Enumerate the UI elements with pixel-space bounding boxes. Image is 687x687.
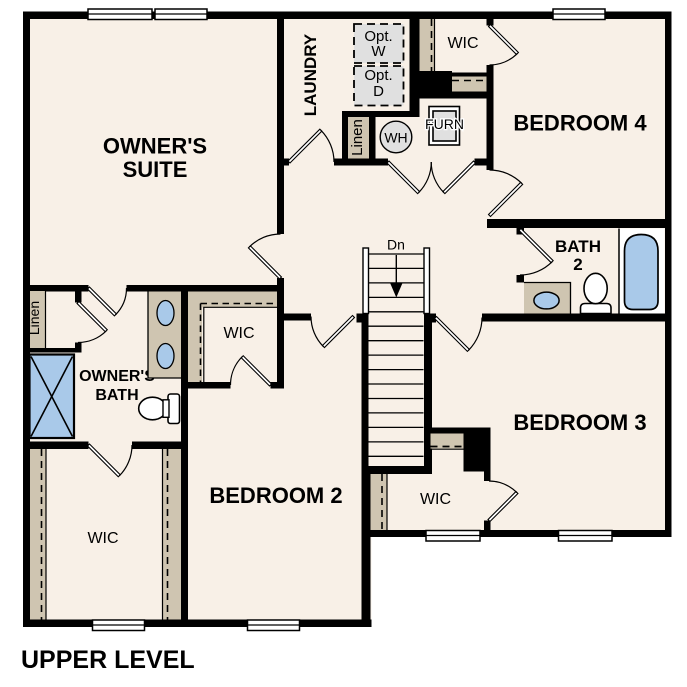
svg-text:WIC: WIC: [223, 325, 254, 342]
svg-text:W: W: [371, 43, 386, 60]
svg-text:Linen: Linen: [349, 119, 366, 156]
svg-text:BATH: BATH: [555, 237, 601, 256]
svg-text:BEDROOM 2: BEDROOM 2: [209, 483, 342, 508]
svg-text:WIC: WIC: [420, 491, 451, 508]
svg-text:FURN: FURN: [425, 116, 464, 132]
svg-text:BEDROOM 4: BEDROOM 4: [513, 111, 647, 136]
svg-text:SUITE: SUITE: [123, 157, 188, 182]
svg-text:Opt.: Opt.: [364, 67, 392, 84]
svg-text:Dn: Dn: [387, 237, 405, 253]
svg-text:2: 2: [573, 255, 582, 274]
svg-text:LAUNDRY: LAUNDRY: [301, 33, 320, 116]
svg-text:WIC: WIC: [447, 35, 478, 52]
svg-text:BEDROOM 3: BEDROOM 3: [513, 410, 646, 435]
svg-text:OWNER'S: OWNER'S: [103, 134, 207, 159]
svg-text:UPPER LEVEL: UPPER LEVEL: [21, 646, 195, 674]
svg-text:OWNER'S: OWNER'S: [79, 368, 155, 385]
svg-text:WH: WH: [384, 130, 407, 146]
svg-text:Linen: Linen: [26, 301, 42, 335]
svg-text:WIC: WIC: [87, 530, 118, 547]
svg-text:D: D: [373, 83, 384, 100]
svg-text:BATH: BATH: [95, 387, 138, 404]
